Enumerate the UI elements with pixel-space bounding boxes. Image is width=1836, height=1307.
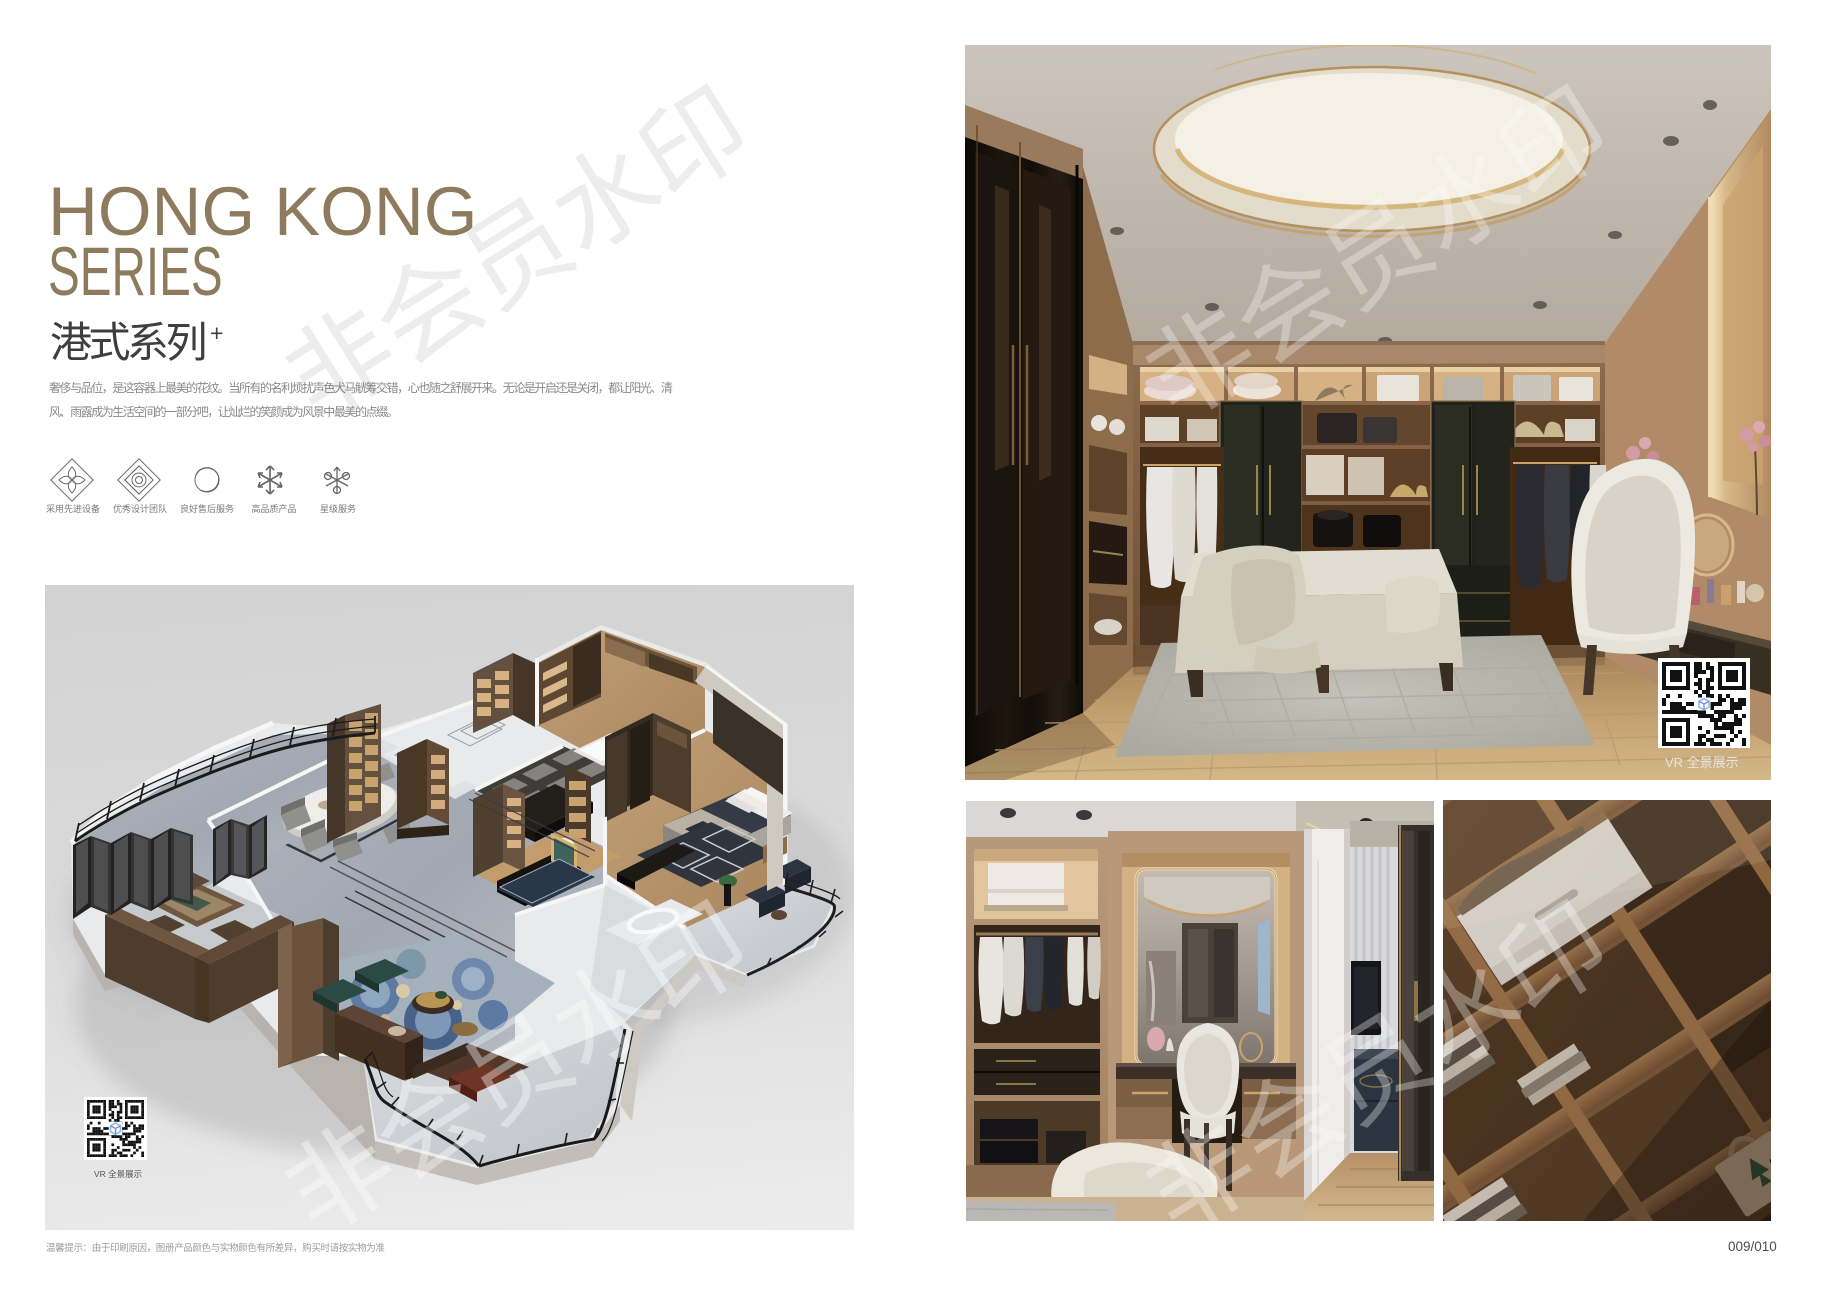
svg-text:VR 全景展示: VR 全景展示 — [1665, 755, 1739, 770]
